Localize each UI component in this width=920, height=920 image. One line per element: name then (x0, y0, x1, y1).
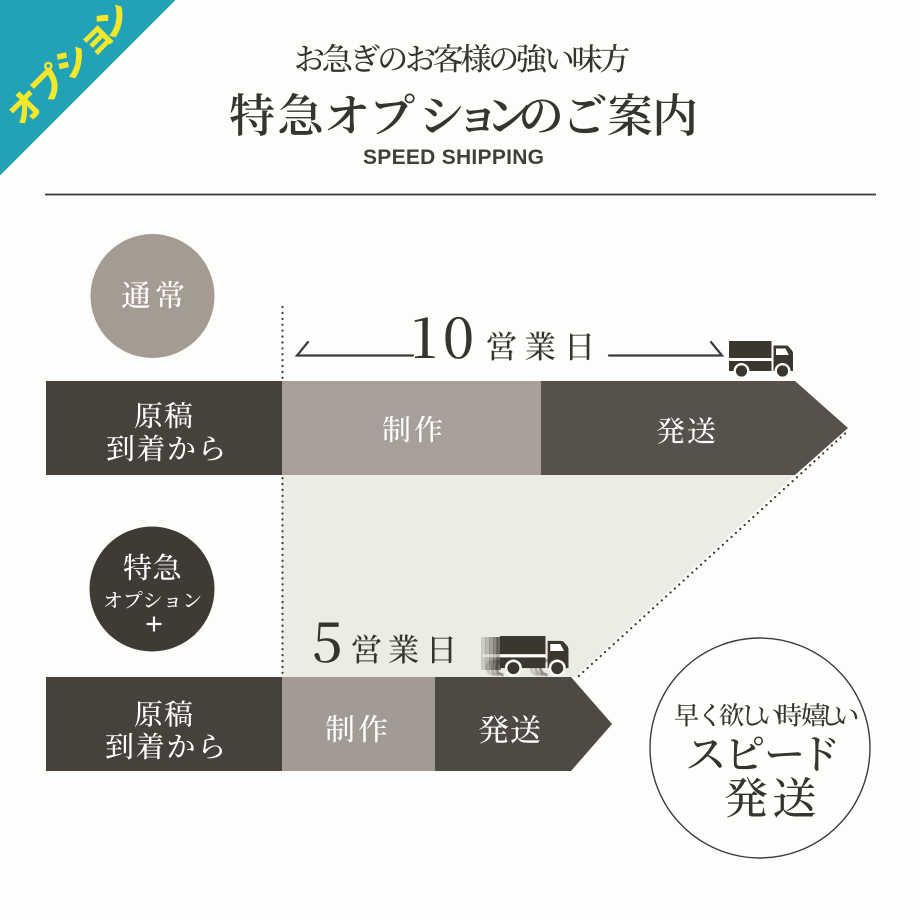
svg-text:SPEED SHIPPING: SPEED SHIPPING (363, 146, 544, 169)
